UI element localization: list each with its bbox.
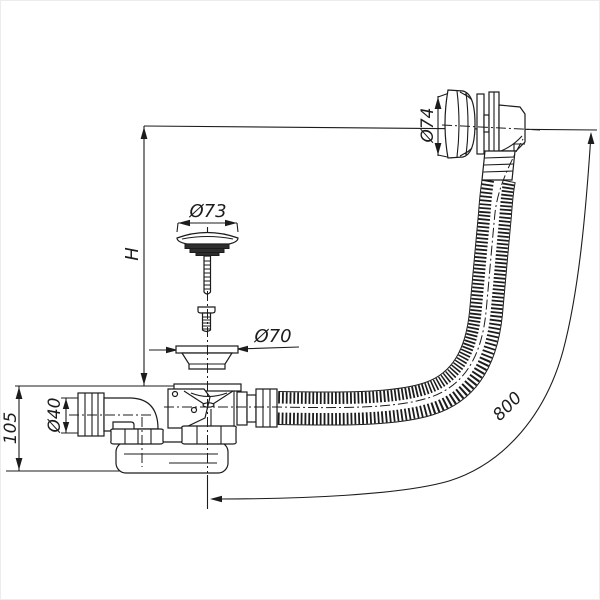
overflow-cover-plate <box>477 94 484 154</box>
arrow-down <box>435 143 442 155</box>
plug-seal-ring <box>185 244 229 249</box>
dim-label-outlet-diameter: Ø40 <box>45 397 65 433</box>
overflow-outlet <box>482 151 515 180</box>
arrow-down <box>16 458 23 470</box>
dim-label-trap-height: 105 <box>1 412 21 444</box>
fixing-bolt <box>198 307 215 332</box>
flexible-overflow-hose <box>278 179 499 409</box>
arrow-up <box>16 387 23 399</box>
plug-seal-ring <box>196 253 219 256</box>
hose-center-band <box>278 179 499 409</box>
hose-connector-ring <box>237 392 247 425</box>
drawing-canvas: H 105 Ø40 Ø73 Ø70 Ø74 <box>1 1 599 599</box>
bolt-head <box>198 307 215 313</box>
dim-label-height: H <box>122 247 143 261</box>
trap-chamber <box>116 442 228 473</box>
arrow-down <box>141 373 148 385</box>
tub-rim-reference-line <box>144 126 597 130</box>
dim-label-strainer-diameter: Ø70 <box>253 326 291 347</box>
waste-plug <box>177 227 238 294</box>
arrow-up <box>588 132 595 144</box>
dim-label-hose-length: 800 <box>489 388 526 425</box>
side-outlet-assembly <box>78 393 163 444</box>
overflow-fitting <box>445 90 525 180</box>
arrow-left <box>210 496 222 502</box>
hose-length-dimension-curve <box>217 134 591 499</box>
overflow-hub <box>484 115 489 132</box>
hose-connector-nut <box>256 389 277 427</box>
dimension-hose-800: 800 <box>208 132 595 509</box>
bracket-screw-hole <box>173 392 178 397</box>
elbow-union-nut <box>111 429 163 444</box>
arrow-up <box>435 97 442 109</box>
arrow-right <box>225 220 237 226</box>
plug-seal-ring <box>190 249 224 253</box>
hose-connector-ring <box>247 395 256 422</box>
plug-threaded-rod <box>204 256 211 294</box>
bracket-screw-hole <box>192 408 197 413</box>
dim-label-overflow-diameter: Ø74 <box>418 107 438 143</box>
technical-drawing-bath-waste-overflow: H 105 Ø40 Ø73 Ø70 Ø74 <box>0 0 600 600</box>
p-trap-body <box>116 442 228 473</box>
arrow-up <box>141 127 148 139</box>
tee-bottom-nut <box>182 426 236 444</box>
arrow-left <box>178 220 190 226</box>
overflow-cap-knob <box>445 90 475 158</box>
dim-label-plug-diameter: Ø73 <box>188 201 226 222</box>
waste-tee-assembly <box>168 384 277 444</box>
